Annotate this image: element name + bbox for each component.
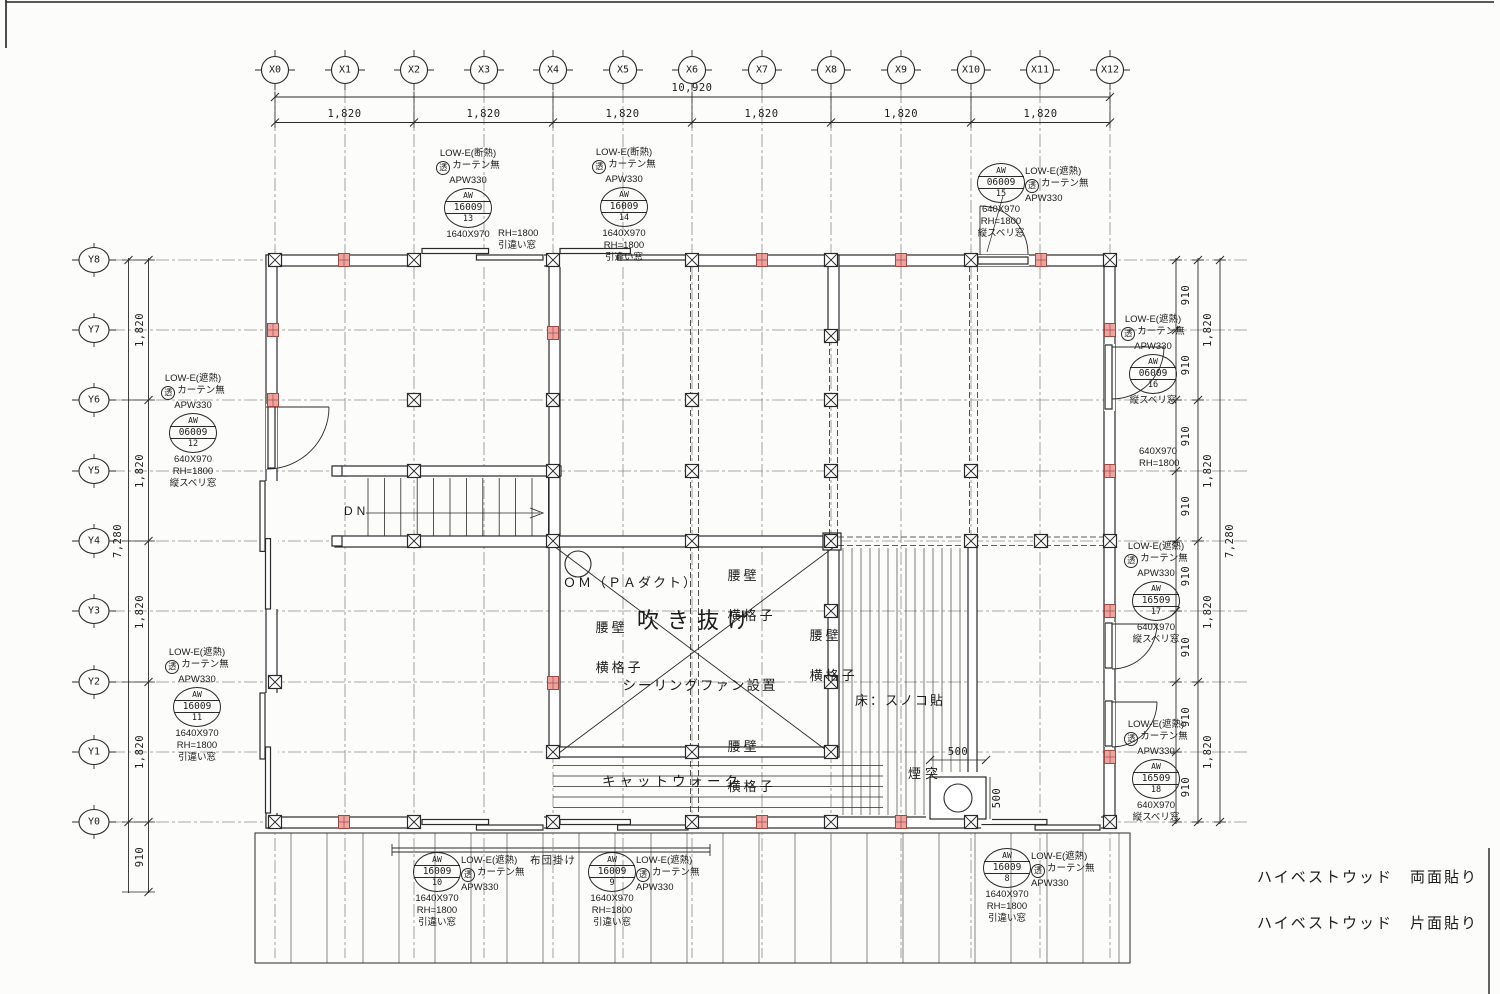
window-spec-above: LOW-E(断熱)透カーテン無APW330 — [568, 147, 680, 186]
y-axis-bubble-label: Y6 — [88, 395, 100, 406]
window-tag-aw13: AW1600913 — [444, 188, 492, 228]
window-spec-below: 1640X970RH=1800引違い窓 — [951, 889, 1063, 925]
dim-chimney-depth: 500 — [991, 788, 1003, 808]
om-duct-label: ＯＭ（ＰＡダクト） — [563, 572, 698, 591]
dim-y-half-segment: 910 — [1180, 777, 1192, 797]
window-tag-aw12: AW0600912 — [169, 413, 217, 453]
window-spec-right: LOW-E(遮熱)透カーテン無APW330 — [1031, 851, 1127, 890]
dim-x-segment: 1,820 — [466, 108, 500, 120]
floor-plan-sheet: 吹き抜け ＯＭ（ＰＡダクト） シーリングファン設置 腰壁 横格子 腰壁 横格子 … — [0, 0, 1500, 994]
y-axis-bubble-label: Y2 — [88, 677, 100, 688]
dim-chimney-width: 500 — [948, 746, 968, 758]
y-axis-bubble-label: Y4 — [88, 536, 100, 547]
y-axis-bubble-label: Y5 — [88, 466, 100, 477]
x-axis-bubble-label: X2 — [408, 65, 420, 76]
tou-circle-icon: 透 — [636, 868, 650, 882]
dim-x-segment: 1,820 — [1023, 108, 1057, 120]
x-axis-bubble-label: X1 — [339, 65, 351, 76]
window-spec-below: 1640X970RH=1800引違い窓 — [556, 893, 668, 929]
tou-circle-icon: 透 — [1025, 179, 1039, 193]
window-tag-aw18: AW1650918 — [1132, 759, 1180, 799]
window-spec-above: LOW-E(遮熱)透カーテン無APW330 — [1097, 314, 1209, 353]
x-axis-bubble-label: X3 — [478, 65, 490, 76]
half-wall-label-right: 腰壁 横格子 — [770, 606, 858, 706]
dim-overall-height-right: 7,280 — [1224, 524, 1236, 558]
x-axis-bubble-label: X6 — [686, 65, 698, 76]
text-label-layer: 吹き抜け ＯＭ（ＰＡダクト） シーリングファン設置 腰壁 横格子 腰壁 横格子 … — [0, 0, 1500, 994]
tou-circle-icon: 透 — [1121, 327, 1135, 341]
x-axis-bubble-label: X11 — [1031, 65, 1049, 76]
window-spec-right: LOW-E(遮熱)透カーテン無APW330 — [636, 855, 732, 894]
dim-overall-height-left: 7,280 — [112, 524, 124, 558]
window-tag-aw17: AW1650917 — [1132, 581, 1180, 621]
dim-y-segment-left: 1,820 — [134, 594, 146, 628]
window-spec-below: 縦スベリ窓 — [1097, 395, 1209, 407]
window-spec-below: 640X970縦スベリ窓 — [1100, 622, 1212, 646]
tou-circle-icon: 透 — [1124, 554, 1138, 568]
y-axis-bubble-label: Y8 — [88, 255, 100, 266]
y-axis-bubble-label: Y3 — [88, 606, 100, 617]
tou-circle-icon: 透 — [165, 660, 179, 674]
dim-y-half-segment: 910 — [1180, 425, 1192, 445]
ceiling-fan-label: シーリングファン設置 — [623, 674, 778, 694]
x-axis-bubble-label: X8 — [825, 65, 837, 76]
dim-y-segment-right: 1,820 — [1202, 453, 1214, 487]
window-spec-above: LOW-E(遮熱)透カーテン無APW330 — [1100, 719, 1212, 758]
dim-y-half-segment: 910 — [1180, 355, 1192, 375]
tou-circle-icon: 透 — [1124, 732, 1138, 746]
window-spec-above: LOW-E(遮熱)透カーテン無APW330 — [137, 373, 249, 412]
window-spec-right: LOW-E(遮熱)透カーテン無APW330 — [1025, 166, 1121, 205]
x-axis-bubble-label: X5 — [617, 65, 629, 76]
dim-deck-depth: 910 — [134, 847, 146, 867]
window-spec-above: LOW-E(遮熱)透カーテン無APW330 — [141, 647, 253, 686]
window-tag-aw9: AW160099 — [588, 852, 636, 892]
dim-overall-width: 10,920 — [672, 82, 713, 94]
tou-circle-icon: 透 — [461, 868, 475, 882]
window-spec-below: 640X970RH=1800縦スベリ窓 — [137, 454, 249, 490]
window-spec-below: 640X970RH=1800縦スベリ窓 — [945, 204, 1057, 240]
dim-y-half-segment: 910 — [1180, 285, 1192, 305]
x-axis-bubble-label: X9 — [895, 65, 907, 76]
window-note-extra-0: RH=1800引違い窓 — [498, 228, 538, 252]
window-tag-aw16: AW0600916 — [1129, 354, 1177, 394]
dim-x-segment: 1,820 — [744, 108, 778, 120]
dim-x-segment: 1,820 — [884, 108, 918, 120]
half-wall-label-top: 腰壁 横格子 — [688, 546, 776, 646]
dim-x-segment: 1,820 — [605, 108, 639, 120]
half-wall-label-left: 腰壁 横格子 — [556, 598, 644, 698]
slat-floor-label: 床：スノコ貼 — [855, 690, 945, 709]
catwalk-label: キャットウォーク — [602, 770, 742, 790]
half-wall-label-bottom: 腰壁 横格子 — [688, 717, 776, 817]
x-axis-bubble-label: X12 — [1101, 65, 1119, 76]
window-spec-above: LOW-E(遮熱)透カーテン無APW330 — [1100, 541, 1212, 580]
tou-circle-icon: 透 — [436, 161, 450, 175]
window-tag-aw15: AW0600915 — [977, 163, 1025, 203]
chimney-label: 煙突 — [908, 763, 942, 782]
x-axis-bubble-label: X0 — [269, 65, 281, 76]
y-axis-bubble-label: Y0 — [88, 817, 100, 828]
window-tag-aw14: AW1600914 — [600, 187, 648, 227]
window-spec-below: 640X970縦スベリ窓 — [1100, 800, 1212, 824]
window-spec-below: 1640X970RH=1800引違い窓 — [381, 893, 493, 929]
window-spec-below: 1640X970RH=1800引違い窓 — [568, 228, 680, 264]
x-axis-bubble-label: X7 — [756, 65, 768, 76]
material-note-one-side: ハイベストウッド 片面貼り — [1257, 912, 1478, 933]
window-tag-aw10: AW1600910 — [413, 852, 461, 892]
y-axis-bubble-label: Y7 — [88, 325, 100, 336]
window-spec-right: LOW-E(遮熱)透カーテン無APW330 — [461, 855, 557, 894]
dim-x-segment: 1,820 — [327, 108, 361, 120]
material-note-both-sides: ハイベストウッド 両面貼り — [1257, 866, 1478, 887]
tou-circle-icon: 透 — [161, 386, 175, 400]
window-spec-below: 1640X970RH=1800引違い窓 — [141, 728, 253, 764]
dim-y-half-segment: 910 — [1180, 496, 1192, 516]
x-axis-bubble-label: X4 — [547, 65, 559, 76]
dim-y-segment-left: 1,820 — [134, 313, 146, 347]
window-tag-aw8: AW160098 — [983, 848, 1031, 888]
y-axis-bubble-label: Y1 — [88, 747, 100, 758]
tou-circle-icon: 透 — [592, 160, 606, 174]
tou-circle-icon: 透 — [1031, 864, 1045, 878]
x-axis-bubble-label: X10 — [962, 65, 980, 76]
window-spec-above: LOW-E(断熱)透カーテン無APW330 — [412, 148, 524, 187]
window-note-extra-1: 640X970RH=1800 — [1139, 446, 1179, 470]
stair-down-label: DN — [344, 504, 369, 518]
window-tag-aw11: AW1600911 — [173, 687, 221, 727]
